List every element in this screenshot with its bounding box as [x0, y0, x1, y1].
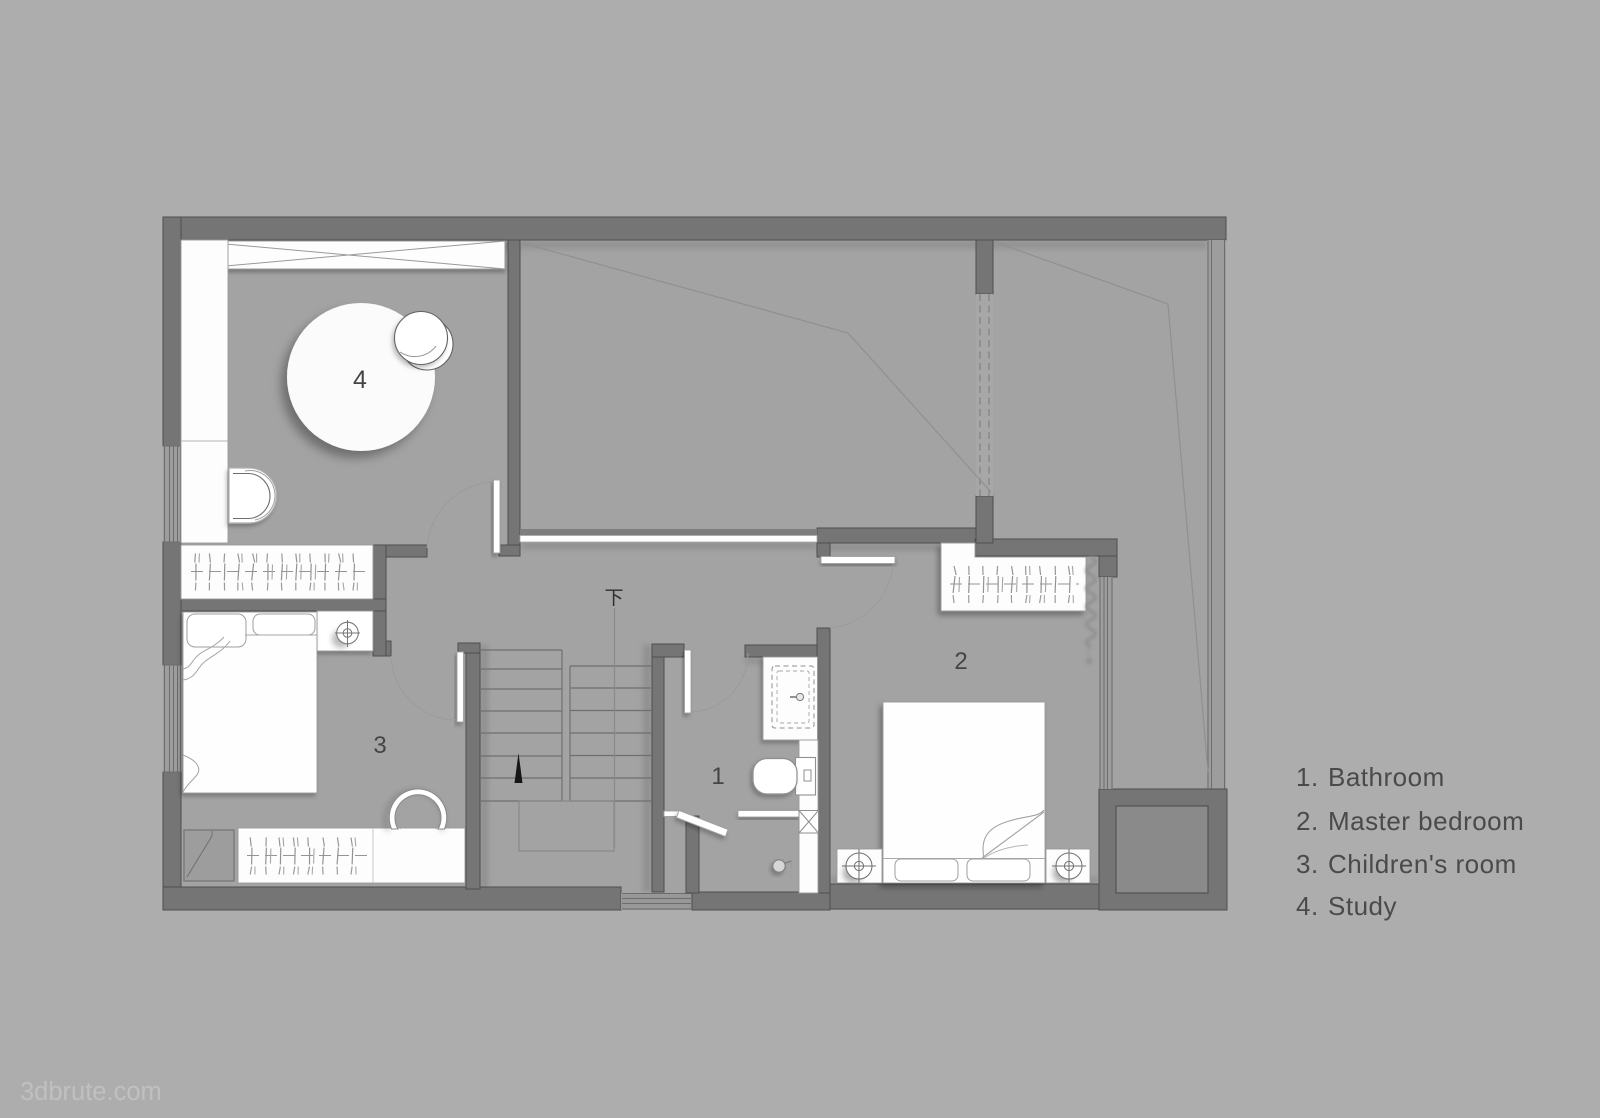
- svg-text:3.: 3.: [1296, 849, 1319, 879]
- svg-text:Master bedroom: Master bedroom: [1328, 806, 1524, 836]
- svg-text:4: 4: [353, 366, 367, 394]
- svg-text:1.: 1.: [1296, 762, 1319, 792]
- svg-text:4.: 4.: [1296, 891, 1319, 921]
- svg-text:下: 下: [604, 588, 623, 609]
- svg-text:Bathroom: Bathroom: [1328, 762, 1445, 792]
- svg-text:2.: 2.: [1296, 806, 1319, 836]
- svg-text:1: 1: [711, 763, 724, 790]
- svg-text:3dbrute.com: 3dbrute.com: [20, 1078, 162, 1106]
- svg-text:Children's room: Children's room: [1328, 849, 1517, 879]
- svg-text:2: 2: [954, 648, 967, 675]
- svg-text:Study: Study: [1328, 891, 1397, 921]
- svg-text:3: 3: [373, 732, 386, 759]
